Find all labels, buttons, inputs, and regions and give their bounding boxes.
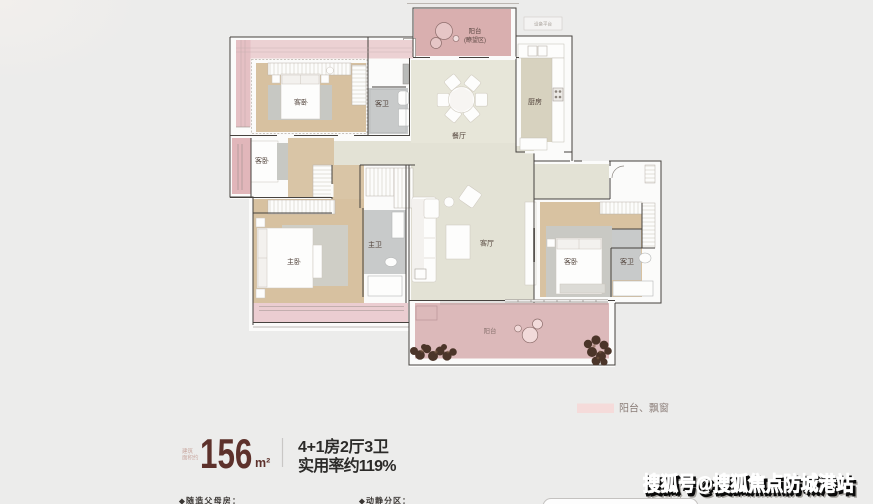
svg-text:客卧: 客卧 xyxy=(564,257,578,266)
svg-text:厨房: 厨房 xyxy=(528,97,542,106)
svg-text:4+1房2厅3卫: 4+1房2厅3卫 xyxy=(298,437,389,456)
svg-text:阳台、飘窗: 阳台、飘窗 xyxy=(619,402,669,415)
svg-text:m²: m² xyxy=(255,456,270,470)
svg-text:随造父母房：: 随造父母房： xyxy=(186,496,241,504)
svg-text:主卫: 主卫 xyxy=(368,240,382,249)
svg-text:客卧: 客卧 xyxy=(255,156,269,165)
svg-text:动静分区：: 动静分区： xyxy=(366,496,411,504)
svg-text:156: 156 xyxy=(200,431,252,477)
svg-text:客卫: 客卫 xyxy=(375,99,389,108)
svg-text:搜狐号@搜狐焦点防城港站: 搜狐号@搜狐焦点防城港站 xyxy=(643,471,854,494)
svg-text:客卫: 客卫 xyxy=(620,257,634,266)
svg-text:主卧: 主卧 xyxy=(287,257,301,266)
svg-text:阳台: 阳台 xyxy=(469,26,482,35)
svg-text:餐厅: 餐厅 xyxy=(452,131,466,140)
svg-text:面积约: 面积约 xyxy=(182,454,199,462)
svg-text:客卧: 客卧 xyxy=(294,98,308,107)
svg-text:实用率约119%: 实用率约119% xyxy=(298,456,396,475)
svg-text:设备平台: 设备平台 xyxy=(534,21,552,28)
svg-text:客厅: 客厅 xyxy=(480,239,494,248)
svg-text:阳台: 阳台 xyxy=(484,326,497,335)
svg-text:建筑: 建筑 xyxy=(182,447,194,455)
svg-text:(瞭望区): (瞭望区) xyxy=(464,36,486,44)
